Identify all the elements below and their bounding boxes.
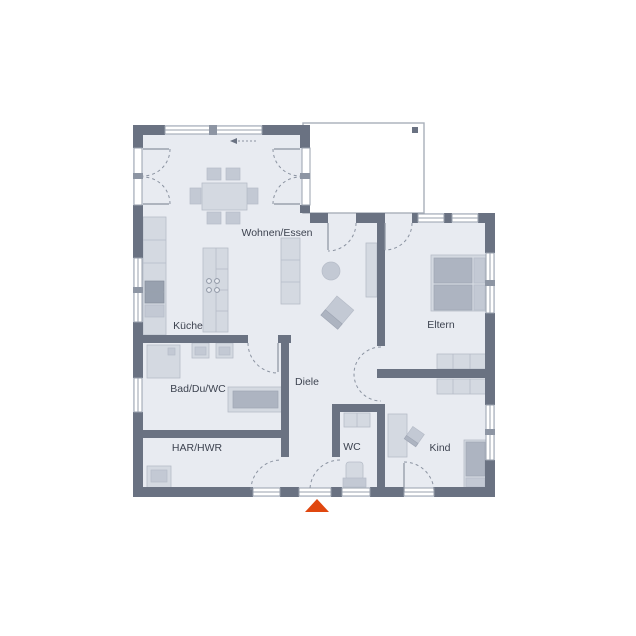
- wall-parents-child: [377, 369, 495, 378]
- round-rug: [322, 262, 340, 280]
- label-bath: Bad/Du/WC: [170, 383, 226, 395]
- washbasin-bowl: [219, 347, 230, 355]
- shelf-cabinet: [366, 243, 377, 297]
- door-post: [133, 173, 143, 179]
- floor-plan-svg: Wohnen/Essen Küche Eltern Bad/Du/WC Diel…: [0, 0, 636, 636]
- mattress: [434, 285, 472, 310]
- mattress: [434, 258, 472, 283]
- window-post: [209, 125, 217, 135]
- dining-chair: [247, 188, 258, 204]
- dining-chair: [207, 212, 221, 224]
- label-wc: WC: [343, 441, 361, 453]
- child-pillow: [466, 478, 485, 487]
- dining-chair: [190, 188, 201, 204]
- wall-living-parents: [377, 213, 385, 346]
- terrace-corner-post: [412, 127, 418, 133]
- toilet-bowl: [346, 462, 363, 480]
- child-mattress: [466, 442, 485, 476]
- wall-bath-hall: [281, 335, 289, 430]
- utility-furniture: [147, 466, 171, 489]
- label-utility: HAR/HWR: [172, 442, 223, 454]
- door-post: [300, 173, 310, 179]
- window-post: [133, 287, 143, 293]
- pillow: [474, 258, 485, 283]
- bathtub-basin: [233, 391, 278, 408]
- cooktop-burner: [215, 279, 220, 284]
- label-living: Wohnen/Essen: [241, 227, 312, 239]
- wardrobe-parents: [437, 354, 486, 369]
- shower-drain: [168, 348, 175, 355]
- wall-wc-child: [377, 404, 385, 487]
- floor-plan-page: Wohnen/Essen Küche Eltern Bad/Du/WC Diel…: [0, 0, 636, 636]
- label-child: Kind: [429, 442, 450, 454]
- terrace: [303, 123, 424, 213]
- cooktop-burner: [207, 279, 212, 284]
- label-kitchen: Küche: [173, 320, 203, 332]
- wall-wc-left: [332, 404, 340, 457]
- dining-chair: [226, 168, 240, 180]
- window-post: [485, 280, 495, 286]
- dishwasher: [145, 305, 164, 317]
- cooktop-burner: [207, 288, 212, 293]
- desk: [388, 414, 407, 457]
- wardrobe-child: [437, 379, 486, 394]
- pillow: [474, 285, 485, 310]
- entrance-marker-icon: [305, 499, 329, 512]
- terrace-outline: [303, 123, 424, 213]
- washbasin-bowl: [195, 347, 206, 355]
- cooktop-burner: [215, 288, 220, 293]
- wall-kitchen-bath: [143, 335, 248, 343]
- dining-table: [202, 183, 247, 210]
- label-hall: Diele: [295, 376, 319, 388]
- wall-bath-utility: [143, 430, 289, 438]
- toilet-tank: [343, 478, 366, 487]
- window-post: [485, 429, 495, 435]
- washing-machine-door: [151, 470, 167, 482]
- wall-vestibule: [281, 430, 289, 457]
- dining-chair: [207, 168, 221, 180]
- dining-chair: [226, 212, 240, 224]
- sideboard: [281, 238, 300, 304]
- label-parents: Eltern: [427, 319, 455, 331]
